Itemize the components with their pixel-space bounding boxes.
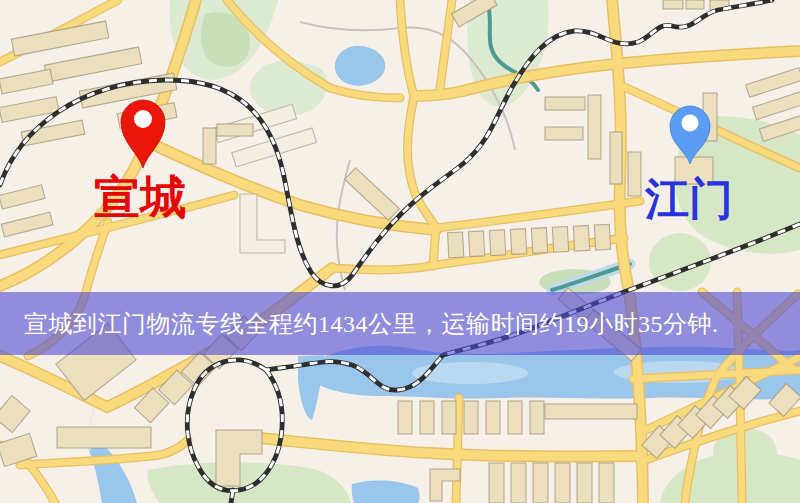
- origin-pin: [121, 100, 165, 168]
- map-canvas: 宣城 江门: [0, 0, 800, 503]
- route-info-text: 宣城到江门物流专线全程约1434公里，运输时间约19小时35分钟.: [24, 308, 719, 340]
- origin-pin-hole: [134, 110, 152, 128]
- origin-city-label: 宣城: [94, 171, 186, 223]
- destination-city-label: 江门: [644, 174, 733, 223]
- route-info-banner: 宣城到江门物流专线全程约1434公里，运输时间约19小时35分钟.: [0, 292, 800, 355]
- logistics-map-image: 宣城 江门 宣城到江门物流专线全程约1434公里，运输时间约19小时35分钟.: [0, 0, 800, 503]
- destination-pin-hole: [682, 115, 699, 132]
